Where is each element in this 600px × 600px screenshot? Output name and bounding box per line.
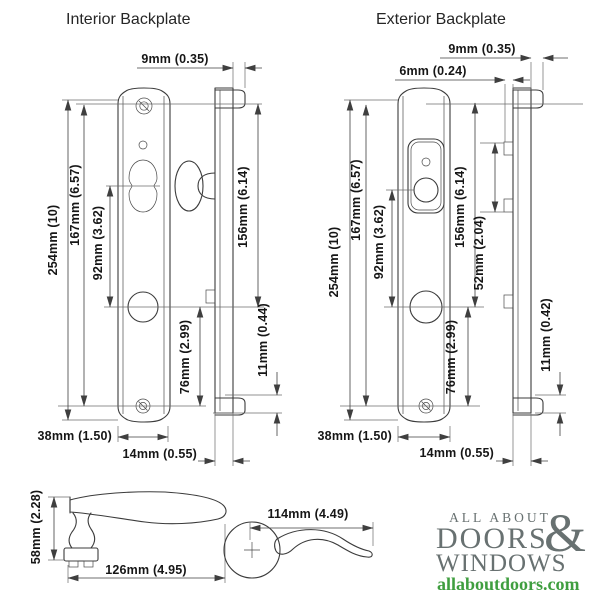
exterior-dim-52mm: 52mm (2.04) [472, 216, 486, 290]
lever-handle-side-view [64, 492, 226, 567]
exterior-side-clip-top [504, 142, 513, 155]
exterior-dim-9mm: 9mm (0.35) [448, 42, 515, 56]
exterior-backplate-title: Exterior Backplate [376, 11, 506, 28]
exterior-dim-38mm: 38mm (1.50) [318, 429, 392, 443]
lever-handle-top-view [224, 522, 372, 578]
lever-dim-114mm: 114mm (4.49) [268, 507, 349, 521]
exterior-small-hole [422, 158, 430, 166]
interior-small-hole [139, 141, 147, 149]
exterior-key-cylinder-hole [414, 178, 438, 202]
exterior-side-clip-middle [504, 199, 513, 212]
interior-dim-254mm: 254mm (10) [46, 205, 60, 276]
interior-dim-92mm: 92mm (3.62) [91, 206, 105, 280]
exterior-dim-11mm: 11mm (0.42) [539, 298, 553, 372]
exterior-dim-167mm: 167mm (6.57) [349, 159, 363, 241]
interior-top-screw-icon [136, 98, 152, 114]
exterior-dim-6mm: 6mm (0.24) [399, 64, 466, 78]
interior-thumbturn-profile [175, 161, 215, 211]
center-mark-icon [244, 542, 260, 558]
interior-dim-9mm: 9mm (0.35) [141, 52, 208, 66]
lever-hub-base [64, 548, 98, 561]
lever-dim-126mm: 126mm (4.95) [105, 563, 187, 577]
interior-dim-167mm: 167mm (6.57) [68, 164, 82, 246]
exterior-backplate-side-view [504, 88, 543, 415]
company-logo: ALL ABOUT & DOORS WINDOWS allaboutdoors.… [436, 503, 586, 594]
exterior-side-clip-bottom [504, 295, 513, 308]
exterior-dim-92mm: 92mm (3.62) [372, 205, 386, 279]
exterior-cylinder-escutcheon [408, 139, 444, 213]
interior-dim-156mm: 156mm (6.14) [236, 166, 250, 248]
exterior-dim-14mm: 14mm (0.55) [420, 446, 494, 460]
exterior-dim-254mm: 254mm (10) [327, 227, 341, 298]
interior-dim-76mm: 76mm (2.99) [178, 320, 192, 394]
lever-dim-58mm: 58mm (2.28) [29, 490, 43, 564]
interior-dim-14mm: 14mm (0.55) [123, 447, 197, 461]
interior-dimension-labels: 9mm (0.35) 254mm (10) 167mm (6.57) 92mm … [38, 52, 270, 461]
lever-top-dimension-lines [250, 522, 373, 546]
interior-backplate-title: Interior Backplate [66, 11, 191, 28]
interior-side-clip [206, 290, 215, 303]
interior-backplate-front-view [118, 88, 170, 422]
interior-dim-11mm: 11mm (0.44) [256, 303, 270, 377]
logo-website-link[interactable]: allaboutdoors.com [437, 574, 580, 594]
backplate-dimension-drawing: Interior Backplate Exterior Backplate [0, 0, 600, 600]
exterior-dim-156mm: 156mm (6.14) [453, 166, 467, 248]
logo-line-windows: WINDOWS [436, 550, 567, 577]
technical-drawing-page: Interior Backplate Exterior Backplate [0, 0, 600, 600]
interior-dim-38mm: 38mm (1.50) [38, 429, 112, 443]
exterior-dim-76mm: 76mm (2.99) [444, 320, 458, 394]
exterior-backplate-front-view [398, 88, 450, 422]
